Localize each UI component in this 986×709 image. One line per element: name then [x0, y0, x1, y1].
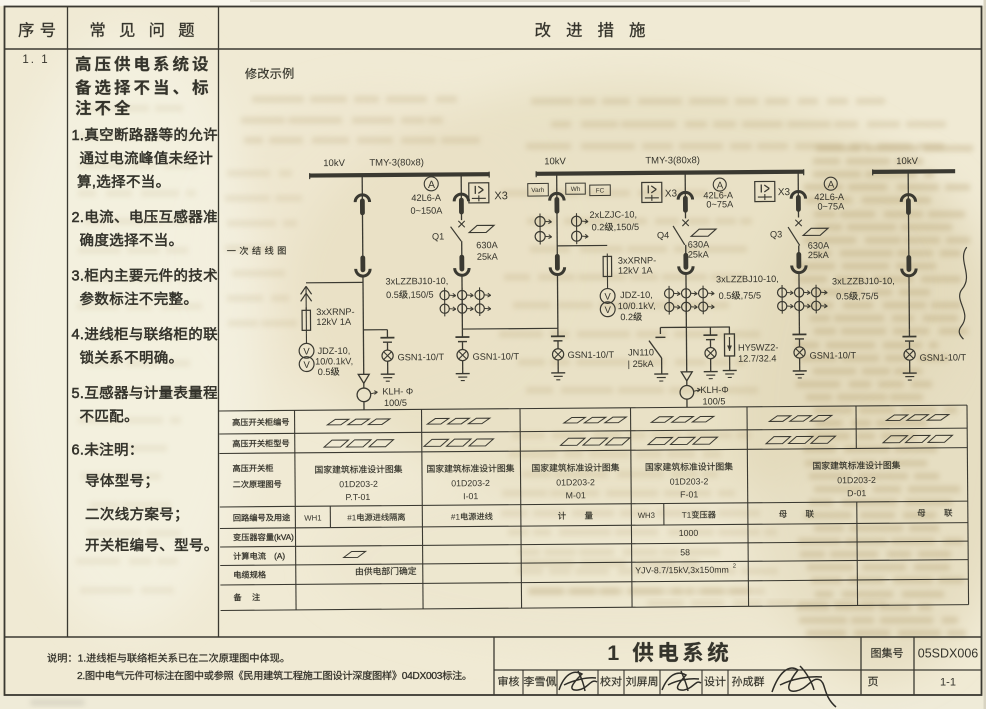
svg-text:M-01: M-01 [566, 490, 586, 500]
svg-text:0.2: 0.2 [592, 222, 605, 232]
svg-text:1000: 1000 [679, 528, 699, 538]
svg-text:V: V [303, 360, 310, 371]
svg-text:1-1: 1-1 [940, 676, 956, 688]
svg-text:01D203-2: 01D203-2 [556, 477, 595, 487]
svg-text:,75/5: ,75/5 [741, 291, 762, 301]
svg-text:GSN1-10/T: GSN1-10/T [473, 351, 520, 361]
svg-text:Wh: Wh [571, 186, 581, 193]
svg-text:1: 1 [607, 641, 622, 665]
svg-text:630A: 630A [476, 240, 498, 250]
svg-text:10/0.1kV,: 10/0.1kV, [315, 356, 353, 366]
svg-text:1. 1: 1. 1 [22, 54, 49, 66]
svg-text:10kV: 10kV [896, 156, 918, 167]
svg-text:2.: 2. [72, 210, 85, 226]
svg-text:TMY-3(80x8): TMY-3(80x8) [645, 155, 700, 166]
svg-text:X3: X3 [778, 187, 791, 198]
svg-text:YJV-8.7/15kV,3x150mm: YJV-8.7/15kV,3x150mm [635, 565, 729, 576]
svg-text:Q4: Q4 [657, 230, 669, 240]
svg-text:3xLZZBJ10-10,: 3xLZZBJ10-10, [832, 276, 895, 286]
svg-text:42L6-A: 42L6-A [411, 193, 442, 203]
svg-text:X3: X3 [665, 188, 678, 199]
svg-text:0~75A: 0~75A [706, 199, 734, 209]
svg-text:05SDX006: 05SDX006 [918, 646, 979, 660]
svg-text:,150/5: ,150/5 [614, 222, 640, 232]
svg-text:01D203-2: 01D203-2 [451, 478, 490, 488]
svg-text:FC: FC [596, 188, 605, 195]
svg-text:V: V [605, 305, 612, 316]
svg-text:Q1: Q1 [432, 232, 444, 242]
svg-text:2xLZJC-10,: 2xLZJC-10, [589, 210, 637, 220]
svg-text:2.: 2. [77, 671, 85, 682]
svg-text:12kV 1A: 12kV 1A [316, 317, 352, 327]
svg-text:25kA: 25kA [808, 250, 830, 260]
svg-text:GSN1-10/T: GSN1-10/T [398, 352, 445, 362]
svg-text:P.T-01: P.T-01 [345, 492, 370, 502]
svg-text:WH1: WH1 [304, 513, 321, 522]
svg-text:0.2: 0.2 [620, 312, 633, 322]
svg-text:10kV: 10kV [544, 156, 566, 167]
svg-text:0.5: 0.5 [318, 367, 331, 377]
svg-text:0~75A: 0~75A [817, 201, 845, 211]
svg-text:25kA: 25kA [477, 252, 499, 262]
svg-text:10/0.1kV,: 10/0.1kV, [618, 301, 656, 311]
svg-text:01D203-2: 01D203-2 [837, 475, 876, 485]
svg-text:D-01: D-01 [847, 488, 866, 498]
svg-text:,75/5: ,75/5 [858, 291, 879, 301]
svg-text:01D203-2: 01D203-2 [670, 476, 709, 486]
svg-text:X3: X3 [494, 190, 508, 202]
svg-text:0.5: 0.5 [386, 290, 399, 300]
svg-text:GSN1-10/T: GSN1-10/T [810, 350, 857, 360]
svg-text:3xXRNP-: 3xXRNP- [618, 255, 656, 265]
svg-text:100/5: 100/5 [702, 396, 725, 406]
svg-text:(A): (A) [274, 552, 285, 561]
svg-text:10kV: 10kV [323, 158, 345, 169]
svg-text:A: A [428, 179, 435, 191]
svg-text:V: V [604, 292, 611, 303]
svg-text:58: 58 [680, 547, 690, 557]
svg-text:JDZ-10,: JDZ-10, [318, 346, 351, 356]
svg-text:01D203-2: 01D203-2 [339, 479, 378, 489]
svg-text:Varh: Varh [531, 187, 545, 194]
svg-text:Q3: Q3 [770, 229, 782, 239]
svg-text:KLH- Φ: KLH- Φ [382, 386, 413, 396]
svg-text:,150/5: ,150/5 [408, 290, 434, 300]
svg-text:(kVA): (kVA) [274, 533, 294, 542]
svg-text:3.: 3. [72, 268, 85, 284]
svg-text:12.7/32.4: 12.7/32.4 [738, 353, 776, 363]
svg-text:0~150A: 0~150A [410, 206, 443, 216]
svg-text:630A: 630A [688, 239, 710, 249]
svg-text:KLH-Φ: KLH-Φ [700, 385, 728, 395]
svg-text:25kA: 25kA [688, 249, 710, 259]
svg-text:F-01: F-01 [680, 489, 698, 499]
svg-text:JDZ-10,: JDZ-10, [620, 290, 653, 300]
svg-text:0.5: 0.5 [836, 291, 849, 301]
svg-text:GSN1-10/T: GSN1-10/T [920, 352, 967, 362]
svg-text:V: V [303, 346, 310, 357]
svg-text:| 25kA: | 25kA [628, 359, 655, 369]
svg-text:5.: 5. [72, 386, 85, 402]
svg-text:,: , [92, 175, 96, 191]
svg-text:3xLZZBJ10-10,: 3xLZZBJ10-10, [716, 274, 779, 284]
svg-text:4.: 4. [72, 327, 85, 343]
svg-text:T1: T1 [682, 511, 692, 520]
svg-text:HY5WZ2-: HY5WZ2- [738, 342, 778, 352]
svg-text:TMY-3(80x8): TMY-3(80x8) [369, 157, 424, 168]
svg-text:I-01: I-01 [463, 491, 478, 501]
svg-text:04DX003: 04DX003 [402, 671, 443, 682]
svg-text:#1: #1 [451, 513, 461, 522]
svg-text:100/5: 100/5 [384, 398, 407, 408]
svg-text:JN110: JN110 [628, 347, 654, 357]
svg-text:GSN1-10/T: GSN1-10/T [568, 350, 615, 360]
svg-text:#1: #1 [347, 513, 357, 522]
svg-text:12kV 1A: 12kV 1A [618, 265, 654, 275]
svg-text:WH3: WH3 [638, 511, 655, 520]
svg-text:3xXRNP-: 3xXRNP- [316, 307, 354, 317]
svg-text:A: A [828, 180, 835, 191]
svg-text:3xLZZBJ10-10,: 3xLZZBJ10-10, [385, 276, 448, 286]
svg-text:0.5: 0.5 [719, 291, 732, 301]
svg-text:1.: 1. [78, 654, 87, 665]
svg-text:6.: 6. [72, 443, 85, 459]
svg-text:1.: 1. [72, 128, 85, 144]
